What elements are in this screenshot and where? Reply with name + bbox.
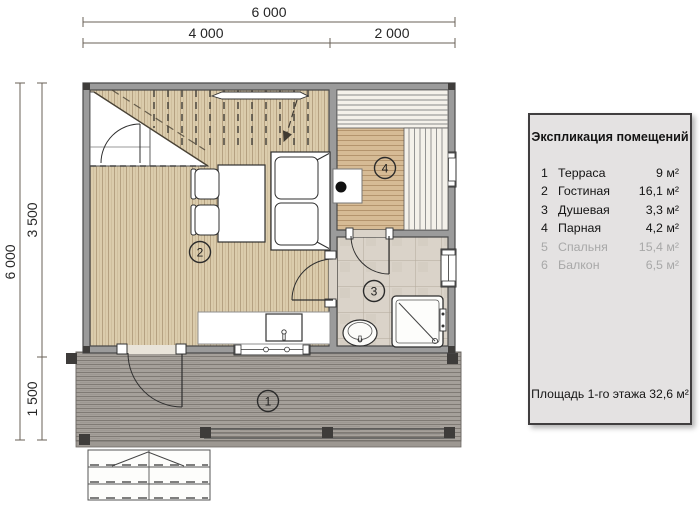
legend-row-name: Терраса (558, 164, 656, 182)
legend-row-name: Парная (558, 219, 646, 237)
chair (191, 169, 219, 199)
shower-number: 3 (371, 285, 378, 299)
dim-left-total: 6 000 (2, 244, 18, 279)
legend-row-area: 15,4 м² (639, 238, 679, 256)
legend-row-sauna: 4 Парная 4,2 м² (541, 219, 679, 237)
sauna-bench-right (404, 128, 448, 230)
legend-rows: 1 Терраса 9 м² 2 Гостиная 16,1 м² 3 Душе… (530, 164, 690, 274)
legend-row-number: 5 (541, 238, 558, 256)
kitchen-counter (198, 312, 330, 344)
legend-panel: Экспликация помещений 1 Терраса 9 м² 2 Г… (528, 113, 692, 425)
kitchen-window (234, 344, 310, 355)
legend-row-bedroom: 5 Спальня 15,4 м² (541, 238, 679, 256)
legend-row-balcony: 6 Балкон 6,5 м² (541, 256, 679, 274)
legend-row-area: 16,1 м² (639, 182, 679, 200)
sauna-number: 4 (382, 162, 389, 176)
legend-row-number: 4 (541, 219, 558, 237)
terrace-steps (88, 450, 210, 500)
legend-row-living: 2 Гостиная 16,1 м² (541, 182, 679, 200)
stair-handrail (212, 92, 308, 99)
legend-row-name: Балкон (558, 256, 646, 274)
legend-row-area: 3,3 м² (646, 201, 679, 219)
legend-row-number: 1 (541, 164, 558, 182)
legend-row-area: 9 м² (656, 164, 679, 182)
dim-top-right: 2 000 (374, 25, 409, 41)
legend-row-shower: 3 Душевая 3,3 м² (541, 201, 679, 219)
legend-footer: Площадь 1-го этажа 32,6 м² (530, 387, 690, 401)
shower-window (441, 249, 456, 287)
terrace-edge-trim (76, 441, 461, 447)
terrace (66, 352, 461, 500)
shower-valve (440, 309, 446, 331)
shower-cabin (392, 296, 446, 347)
legend-row-area: 4,2 м² (646, 219, 679, 237)
legend-row-number: 2 (541, 182, 558, 200)
legend-row-name: Гостиная (558, 182, 639, 200)
legend-row-name: Спальня (558, 238, 639, 256)
dining-table (218, 165, 265, 242)
floor-plan-page: 1 2 3 4 6 000 4 000 2 000 6 000 3 500 1 … (0, 0, 700, 523)
legend-row-number: 3 (541, 201, 558, 219)
chair (191, 205, 219, 235)
legend-row-terrace: 1 Терраса 9 м² (541, 164, 679, 182)
faucet-icon (282, 330, 286, 334)
toilet (343, 320, 377, 346)
legend-title: Экспликация помещений (530, 130, 690, 144)
living-room-number: 2 (197, 246, 204, 260)
legend-row-number: 6 (541, 256, 558, 274)
dim-top-left: 4 000 (188, 25, 223, 41)
sofa (271, 152, 330, 250)
legend-row-name: Душевая (558, 201, 646, 219)
sauna-bench-top (337, 90, 448, 128)
dim-left-lower: 1 500 (24, 381, 40, 416)
dim-left-upper: 3 500 (24, 202, 40, 237)
sauna-stove (333, 169, 362, 203)
legend-row-area: 6,5 м² (646, 256, 679, 274)
dim-top-total: 6 000 (251, 4, 286, 20)
terrace-number: 1 (265, 395, 272, 409)
